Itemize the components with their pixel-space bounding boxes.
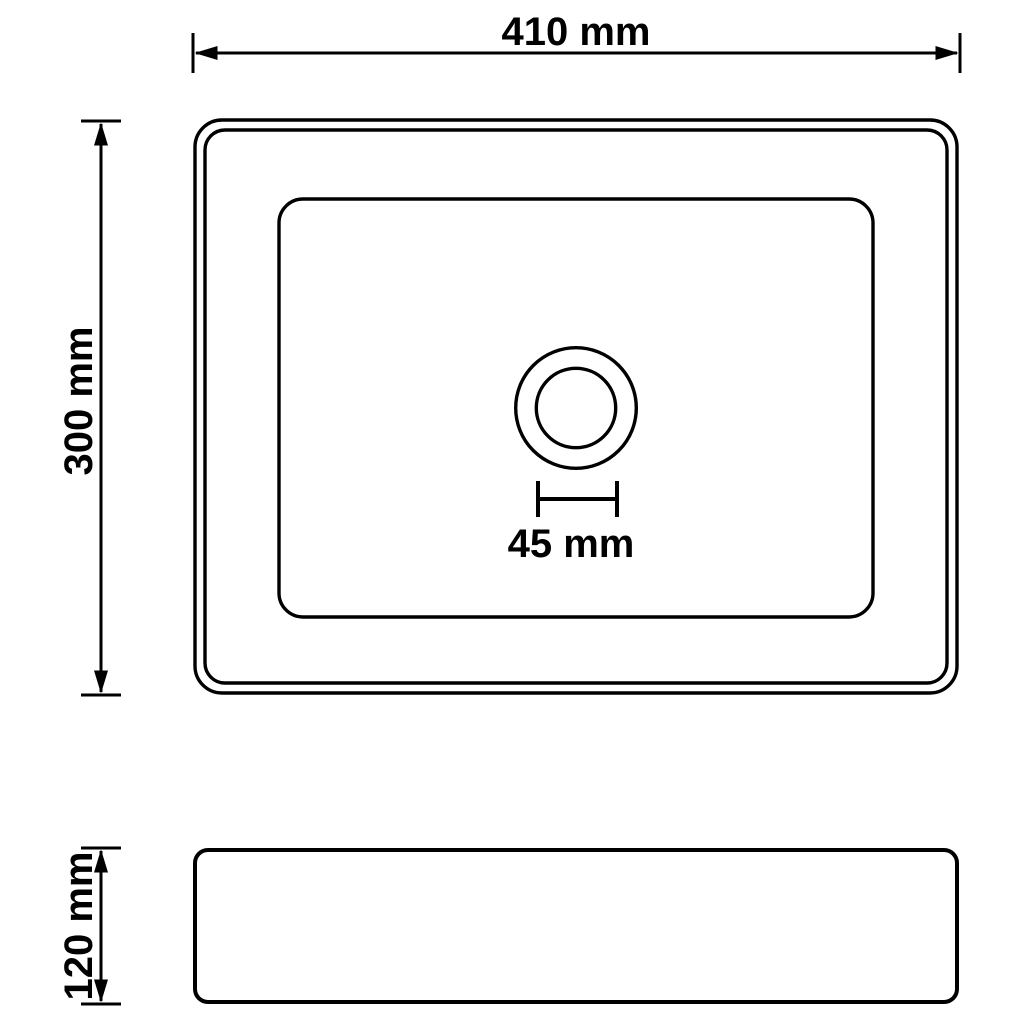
drain-dim-label: 45 mm xyxy=(508,522,635,566)
plan-view xyxy=(195,120,957,693)
height-dim-label: 120 mm xyxy=(57,852,101,1001)
depth-dim-label: 300 mm xyxy=(57,327,101,476)
basin-dimension-drawing: 410 mm 300 mm 45 mm xyxy=(0,0,1024,1024)
width-dimension: 410 mm xyxy=(193,10,960,73)
drain-outer-circle xyxy=(516,348,637,469)
drawing-canvas: 410 mm 300 mm 45 mm xyxy=(0,0,1024,1024)
side-view xyxy=(195,850,957,1002)
width-dim-label: 410 mm xyxy=(502,10,651,54)
height-dimension: 120 mm xyxy=(57,848,121,1004)
basin-outer-rim-inner-line xyxy=(205,130,947,683)
width-dim-right-arrow-icon xyxy=(936,46,959,60)
width-dim-left-arrow-icon xyxy=(195,46,218,60)
depth-dim-down-arrow-icon xyxy=(94,671,108,694)
basin-outer-rim xyxy=(195,120,957,693)
drain-inner-circle xyxy=(536,368,615,447)
depth-dimension: 300 mm xyxy=(57,121,121,695)
depth-dim-up-arrow-icon xyxy=(94,123,108,146)
drain-dimension: 45 mm xyxy=(508,481,635,566)
basin-side-profile xyxy=(195,850,957,1002)
